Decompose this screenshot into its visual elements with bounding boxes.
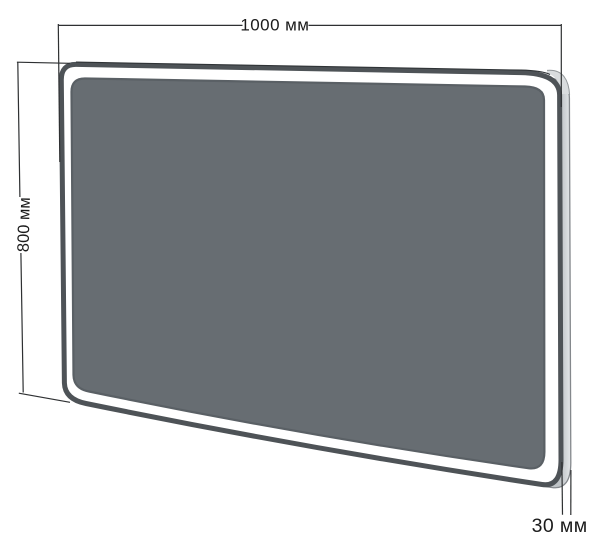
svg-text:30 мм: 30 мм xyxy=(532,515,588,537)
svg-text:1000 мм: 1000 мм xyxy=(240,16,309,35)
svg-text:800 мм: 800 мм xyxy=(15,197,34,252)
